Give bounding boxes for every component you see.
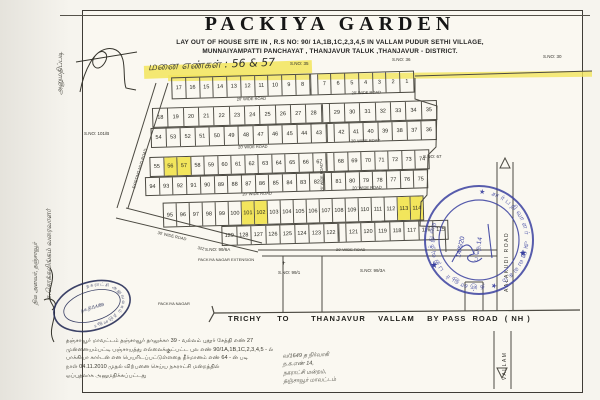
plot-65: 65 <box>286 154 300 172</box>
plot-120: 120 <box>361 223 376 241</box>
survey-no-99-6a: S.NO: 99/6A <box>205 248 230 253</box>
plot-63: 63 <box>259 155 273 173</box>
plot-73: 73 <box>402 151 416 169</box>
plot-98: 98 <box>203 202 217 225</box>
plot-84: 84 <box>283 174 297 191</box>
plot-39: 39 <box>378 122 393 140</box>
plot-99: 99 <box>216 202 230 225</box>
plot-108: 108 <box>333 199 347 222</box>
survey-no-67: S.NO: 67 <box>423 155 442 160</box>
plot-111: 111 <box>372 197 386 220</box>
plot-95: 95 <box>164 203 178 226</box>
plot-36: 36 <box>422 121 436 139</box>
plot-25: 25 <box>260 105 276 123</box>
plot-2: 2 <box>387 72 401 92</box>
road-20-label-1: 20' WIDE ROAD <box>237 97 267 102</box>
plot-127: 127 <box>251 226 266 244</box>
plot-8: 8 <box>296 75 310 95</box>
survey-no-30: S.NO: 30 <box>543 55 562 60</box>
plot-33: 33 <box>391 102 407 120</box>
plot-row-1: 1716151413121110987654321 <box>171 71 415 100</box>
plot-18: 18 <box>153 108 169 126</box>
plot-9: 9 <box>282 75 296 95</box>
cross-mark: + <box>282 261 286 267</box>
plot-101: 101 <box>242 201 256 224</box>
plot-87: 87 <box>242 175 256 192</box>
plot-28: 28 <box>306 104 322 122</box>
paragraph-line: தஞ்சாவூர் மாவட்டம் தஞ்சாவூர் தாலுக்கா 39… <box>66 337 298 346</box>
plot-93: 93 <box>160 177 174 194</box>
plot-32: 32 <box>375 102 391 120</box>
plot-11: 11 <box>255 76 269 96</box>
plot-45: 45 <box>283 125 298 143</box>
plot-77: 77 <box>387 171 401 188</box>
plot-123: 123 <box>309 224 324 242</box>
survey-no-101b: S.NO: 101/B <box>84 132 109 137</box>
plot-109: 109 <box>346 198 360 221</box>
plot-117: 117 <box>405 222 420 240</box>
plot-107: 107 <box>320 199 334 222</box>
plot-110: 110 <box>359 198 373 221</box>
plot-64: 64 <box>272 154 286 172</box>
plot-89: 89 <box>214 176 228 193</box>
plot-38: 38 <box>393 122 408 140</box>
plot-52: 52 <box>181 128 196 146</box>
plot-86: 86 <box>255 175 269 192</box>
plot-85: 85 <box>269 174 283 191</box>
plot-46: 46 <box>268 125 283 143</box>
handwritten-margin-note-2: நில அளவர், தஞ்சாவூர் <box>33 242 40 305</box>
plot-58: 58 <box>191 156 205 174</box>
plot-81: 81 <box>332 173 346 190</box>
plot-83: 83 <box>297 174 311 191</box>
plot-10: 10 <box>268 75 282 95</box>
plot-96: 96 <box>177 203 191 226</box>
survey-no-99-3a: S.NO: 99/3A <box>360 269 385 274</box>
plot-23: 23 <box>230 106 246 124</box>
plot-105: 105 <box>294 200 308 223</box>
plot-66: 66 <box>299 153 313 171</box>
plot-43: 43 <box>312 124 327 142</box>
road-20-vertical-label: 20' WIDE ROAD <box>321 163 326 191</box>
plot-68: 68 <box>334 152 348 170</box>
plot-103: 103 <box>268 200 282 223</box>
plot-54: 54 <box>152 129 167 147</box>
plot-70: 70 <box>361 152 375 170</box>
road-20-label-6: 20' WIDE ROAD <box>352 186 382 191</box>
plot-124: 124 <box>295 225 310 243</box>
plot-76: 76 <box>400 171 414 188</box>
plot-102: 102 <box>255 201 269 224</box>
plot-126: 126 <box>266 225 281 243</box>
plot-92: 92 <box>173 177 187 194</box>
survey-no-35: S.NO: 35 <box>290 62 309 67</box>
plot-113: 113 <box>398 197 412 220</box>
paragraph-line: நாள் 04.11.2010 முதல் விற்பனை செய்ய நகரா… <box>66 363 298 372</box>
road-20-label-2: 20' WIDE ROAD <box>352 91 382 96</box>
plot-6: 6 <box>331 74 345 94</box>
plot-71: 71 <box>375 151 389 169</box>
paragraph-line: ஒப்புதலாக அனுமதிக்கப்பட்டது <box>66 372 298 381</box>
plot-91: 91 <box>187 177 201 194</box>
paragraph-line: பாக்கியா கார்டன் என பெயரிடப்பட்டுள்ளதை த… <box>66 354 298 363</box>
plot-16: 16 <box>186 78 200 98</box>
plot-50: 50 <box>210 127 225 145</box>
plot-125: 125 <box>280 225 295 243</box>
plot-49: 49 <box>224 127 239 145</box>
road-20-bottom-label: 20' WIDE ROAD <box>336 248 365 252</box>
plot-128: 128 <box>237 226 252 244</box>
plot-100: 100 <box>229 201 243 224</box>
plot-42: 42 <box>334 123 349 141</box>
plot-116: 116 <box>419 221 434 239</box>
plot-88: 88 <box>228 175 242 192</box>
plot-112: 112 <box>385 197 399 220</box>
plot-26: 26 <box>276 105 292 123</box>
plot-56: 56 <box>164 157 178 175</box>
plot-37: 37 <box>407 121 422 139</box>
plot-62: 62 <box>245 155 259 173</box>
plot-7: 7 <box>318 74 332 94</box>
plot-20: 20 <box>184 108 200 126</box>
plot-61: 61 <box>232 155 246 173</box>
plot-118: 118 <box>390 222 405 240</box>
plot-15: 15 <box>200 77 214 97</box>
plot-53: 53 <box>166 128 181 146</box>
plot-24: 24 <box>245 106 261 124</box>
plot-97: 97 <box>190 203 204 226</box>
bypass-road-label: TRICHY TO THANJAVUR VALLAM BY PASS ROAD … <box>228 315 531 323</box>
plot-75: 75 <box>414 170 427 187</box>
handwritten-margin-note-top: அனுமதிப்படி <box>56 52 65 95</box>
plot-51: 51 <box>195 127 210 145</box>
plot-57: 57 <box>177 157 191 175</box>
plot-129: 129 <box>222 227 237 245</box>
survey-no-99-1: S.NO: 99/1 <box>278 271 300 276</box>
handwritten-office-note: வ/1649 த நிர்வாகி ந.க.எண் 14, நகராட்சி ம… <box>282 349 373 386</box>
plot-72: 72 <box>389 151 403 169</box>
plot-59: 59 <box>205 156 219 174</box>
plot-94: 94 <box>146 178 160 195</box>
packiya-nagar-extension-label: PACKIYA NAGAR EXTENSION <box>198 258 254 262</box>
plot-21: 21 <box>199 107 215 125</box>
survey-no-36: S.NO: 36 <box>392 58 411 63</box>
plot-47: 47 <box>254 126 269 144</box>
plot-106: 106 <box>307 199 321 222</box>
plot-13: 13 <box>227 76 241 96</box>
plot-27: 27 <box>291 105 307 123</box>
plot-31: 31 <box>360 103 376 121</box>
paragraph-line: முன்னையம்பட்டி பஞ்சாயத்து எல்லைக்குட்பட்… <box>66 346 298 355</box>
plot-17: 17 <box>172 78 186 98</box>
plot-19: 19 <box>168 108 184 126</box>
plot-122: 122 <box>324 224 339 242</box>
plot-60: 60 <box>218 156 232 174</box>
plot-55: 55 <box>150 158 164 176</box>
plot-114: 114 <box>411 196 424 219</box>
aalakudi-road-label: AALAKUDI ROAD <box>505 232 510 292</box>
plot-90: 90 <box>201 176 215 193</box>
vallam-label: VALLAM <box>503 352 508 380</box>
plot-35: 35 <box>421 101 436 119</box>
plot-115: 115 <box>434 221 448 239</box>
plot-121: 121 <box>346 223 361 241</box>
plot-22: 22 <box>214 107 230 125</box>
plot-69: 69 <box>348 152 362 170</box>
scanned-layout-document: PACKIYA GARDEN LAY OUT OF HOUSE SITE IN … <box>0 0 600 400</box>
road-20-label-4: 20' WIDE ROAD <box>351 139 381 144</box>
plot-1: 1 <box>400 72 413 92</box>
road-20-label-3: 20' WIDE ROAD <box>238 145 268 150</box>
approval-paragraph: தஞ்சாவூர் மாவட்டம் தஞ்சாவூர் தாலுக்கா 39… <box>66 337 298 380</box>
plot-48: 48 <box>239 126 254 144</box>
handwritten-margin-note-1: சு.சொக்கலிங்கம் வரைவாளர் <box>45 209 54 300</box>
plot-104: 104 <box>281 200 295 223</box>
plot-34: 34 <box>406 101 422 119</box>
plot-30: 30 <box>345 103 361 121</box>
plot-29: 29 <box>330 104 346 122</box>
plot-14: 14 <box>213 77 227 97</box>
plot-44: 44 <box>297 124 312 142</box>
packiya-nagar-label: PACKIYA NAGAR <box>158 302 190 306</box>
road-20-label-5: 20' WIDE ROAD <box>242 192 272 197</box>
plot-119: 119 <box>376 222 391 240</box>
plot-12: 12 <box>241 76 255 96</box>
